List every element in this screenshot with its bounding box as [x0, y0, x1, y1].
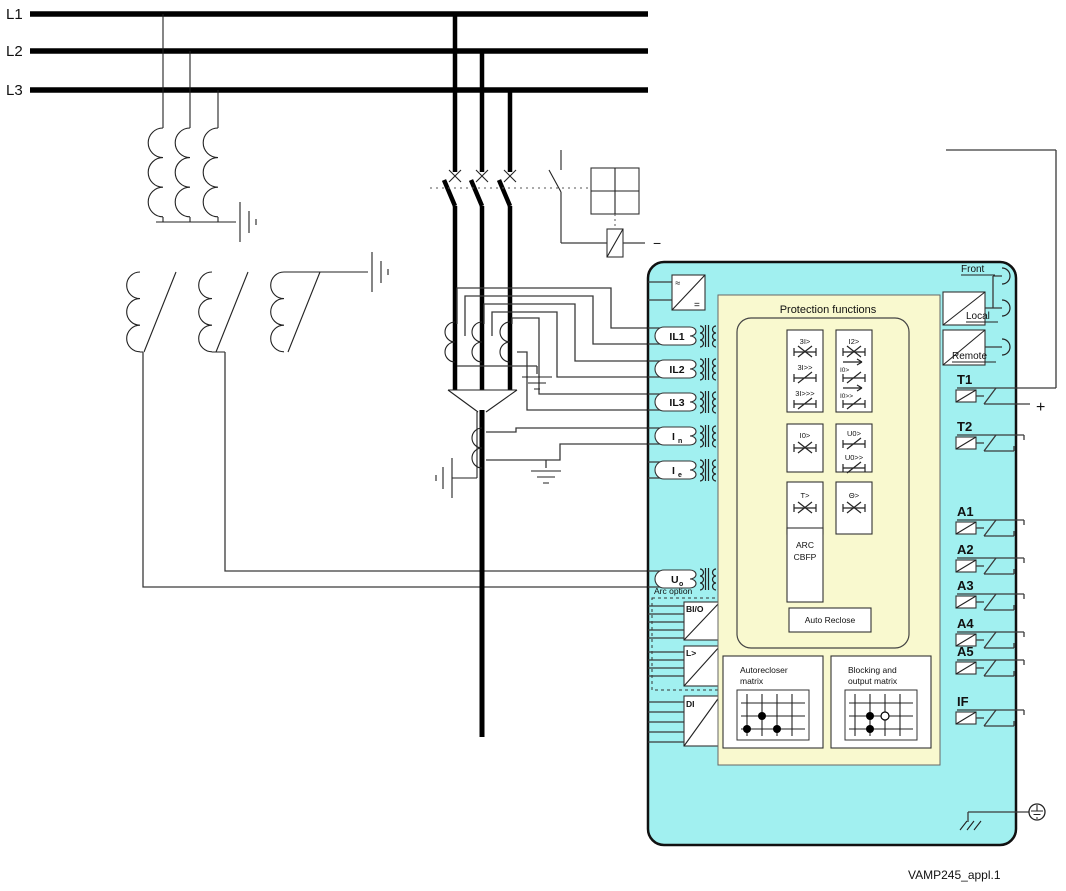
function-block-temperature: Θ>	[836, 482, 872, 534]
autorecloser-matrix-box: Autorecloser matrix	[723, 656, 823, 748]
wire-u0-b	[143, 352, 648, 587]
function-label: I2>	[849, 337, 860, 346]
output-label: T2	[957, 419, 972, 434]
remote-port-label: Remote	[952, 351, 987, 362]
input-label: I	[672, 465, 675, 477]
function-block-directional-ef: I2> I0> I0>>	[836, 330, 872, 412]
front-port-label: Front	[961, 264, 985, 275]
wire-u0-a	[225, 352, 648, 571]
output-label: T1	[957, 372, 972, 387]
output-label: IF	[957, 694, 969, 709]
input-label: IL2	[669, 364, 684, 376]
output-label: A3	[957, 578, 974, 593]
arc-option-title: Arc option	[654, 586, 693, 596]
function-label: Θ>	[849, 491, 860, 500]
blocking-output-matrix-box: Blocking and output matrix	[831, 656, 931, 748]
feeder-lines	[430, 14, 588, 390]
earth-symbol	[372, 252, 388, 292]
input-in: I n	[648, 425, 716, 447]
matrix-dot	[773, 725, 781, 733]
busbars: L1 L2 L3	[6, 6, 648, 99]
input-ie: I e	[648, 459, 716, 481]
circuit-breaker	[444, 180, 510, 206]
function-label: I0>	[800, 431, 811, 440]
ac-symbol: ≈	[675, 278, 680, 288]
function-block-earth-fault: I0>	[787, 424, 823, 472]
arc-light-module-label: L>	[686, 648, 696, 658]
function-label: CBFP	[794, 552, 817, 562]
function-label: T>	[801, 491, 811, 500]
dc-symbol: =	[694, 300, 700, 311]
output-label: A1	[957, 504, 974, 519]
local-port-label: Local	[966, 311, 990, 322]
function-label: 3I>	[800, 337, 811, 346]
bus-label-l1: L1	[6, 6, 23, 23]
minus-terminal: −	[653, 235, 661, 251]
function-label: ARC	[796, 540, 814, 550]
input-label: U	[671, 574, 679, 586]
voltage-transformer-open-delta	[127, 252, 388, 352]
diagram-caption: VAMP245_appl.1	[908, 868, 1001, 882]
schematic-canvas: L1 L2 L3	[0, 0, 1066, 891]
breaker-control: −	[549, 150, 661, 257]
matrix-label-line1: Autorecloser	[740, 665, 788, 675]
output-label: A2	[957, 542, 974, 557]
function-label: I0>	[840, 367, 849, 374]
protective-earth-icon	[1029, 804, 1045, 820]
output-label: A5	[957, 644, 974, 659]
ring-core-ct	[472, 428, 648, 483]
matrix-dot	[866, 712, 874, 720]
plus-terminal: +	[1036, 399, 1045, 416]
function-label: 3I>>>	[795, 389, 815, 398]
matrix-dot	[758, 712, 766, 720]
input-label: I	[672, 431, 675, 443]
earth-symbol	[531, 471, 561, 483]
earth-symbol	[436, 458, 452, 498]
matrix-dot	[866, 725, 874, 733]
matrix-dot	[743, 725, 751, 733]
cable-termination	[436, 390, 517, 737]
function-block-residual-voltage: U0> U0>>	[836, 424, 872, 473]
ct-secondary-wires	[457, 288, 648, 410]
function-label: 3I>>	[797, 363, 813, 372]
voltage-transformer-primary	[148, 14, 256, 242]
bio-module-label: BI/O	[686, 604, 704, 614]
earth-symbol	[240, 202, 256, 242]
function-label: Auto Reclose	[805, 615, 856, 625]
application-diagram: L1 L2 L3	[0, 0, 1066, 891]
function-block-arc-cbfp: ARC CBFP	[787, 528, 823, 602]
function-label: U0>>	[845, 453, 864, 462]
function-label: I0>>	[840, 393, 853, 400]
function-block-thermal: T>	[787, 482, 823, 534]
input-label-sub: n	[678, 438, 682, 445]
matrix-label-line2: matrix	[740, 676, 764, 686]
input-il2: IL2	[648, 358, 716, 380]
input-il1: IL1	[648, 325, 716, 347]
matrix-label-line1: Blocking and	[848, 665, 897, 675]
input-label: IL1	[669, 331, 684, 343]
matrix-label-line2: output matrix	[848, 676, 898, 686]
bus-label-l2: L2	[6, 43, 23, 60]
function-label: U0>	[847, 429, 862, 438]
bus-label-l3: L3	[6, 82, 23, 99]
input-il3: IL3	[648, 391, 716, 413]
input-label: IL3	[669, 397, 684, 409]
matrix-dot-open	[881, 712, 889, 720]
output-label: A4	[957, 616, 974, 631]
protection-panel-title: Protection functions	[780, 304, 877, 316]
input-label-sub: e	[678, 472, 682, 479]
function-block-overcurrent: 3I> 3I>> 3I>>>	[787, 330, 823, 412]
function-block-auto-reclose: Auto Reclose	[789, 608, 871, 632]
digital-input-module-label: DI	[686, 699, 695, 709]
